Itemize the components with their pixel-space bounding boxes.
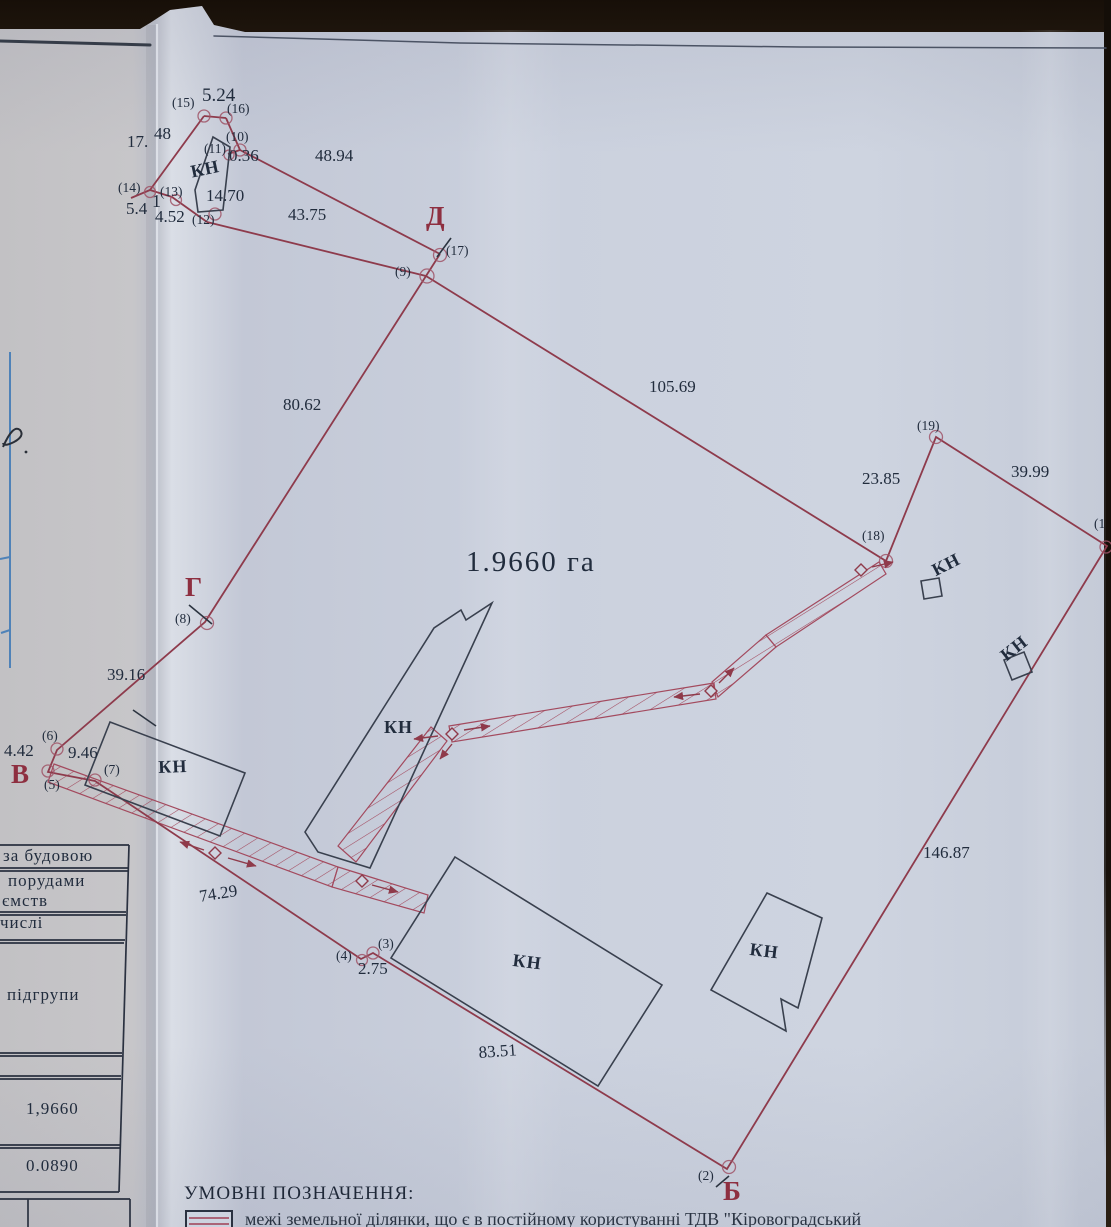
plan-drawing xyxy=(0,0,1111,1227)
photographed-cadastral-plan: 1.9660 га 5.2417.480.3648.9414.704.525.4… xyxy=(0,0,1111,1227)
photo-right-edge xyxy=(1104,0,1111,1160)
legend-swatch xyxy=(186,1211,232,1227)
paper-crease-shadow xyxy=(146,25,156,1227)
paper-sheet xyxy=(0,0,1111,1227)
legend-title: УМОВНІ ПОЗНАЧЕННЯ: xyxy=(184,1183,414,1205)
legend-item-text: межі земельної ділянки, що є в постійном… xyxy=(245,1209,861,1227)
